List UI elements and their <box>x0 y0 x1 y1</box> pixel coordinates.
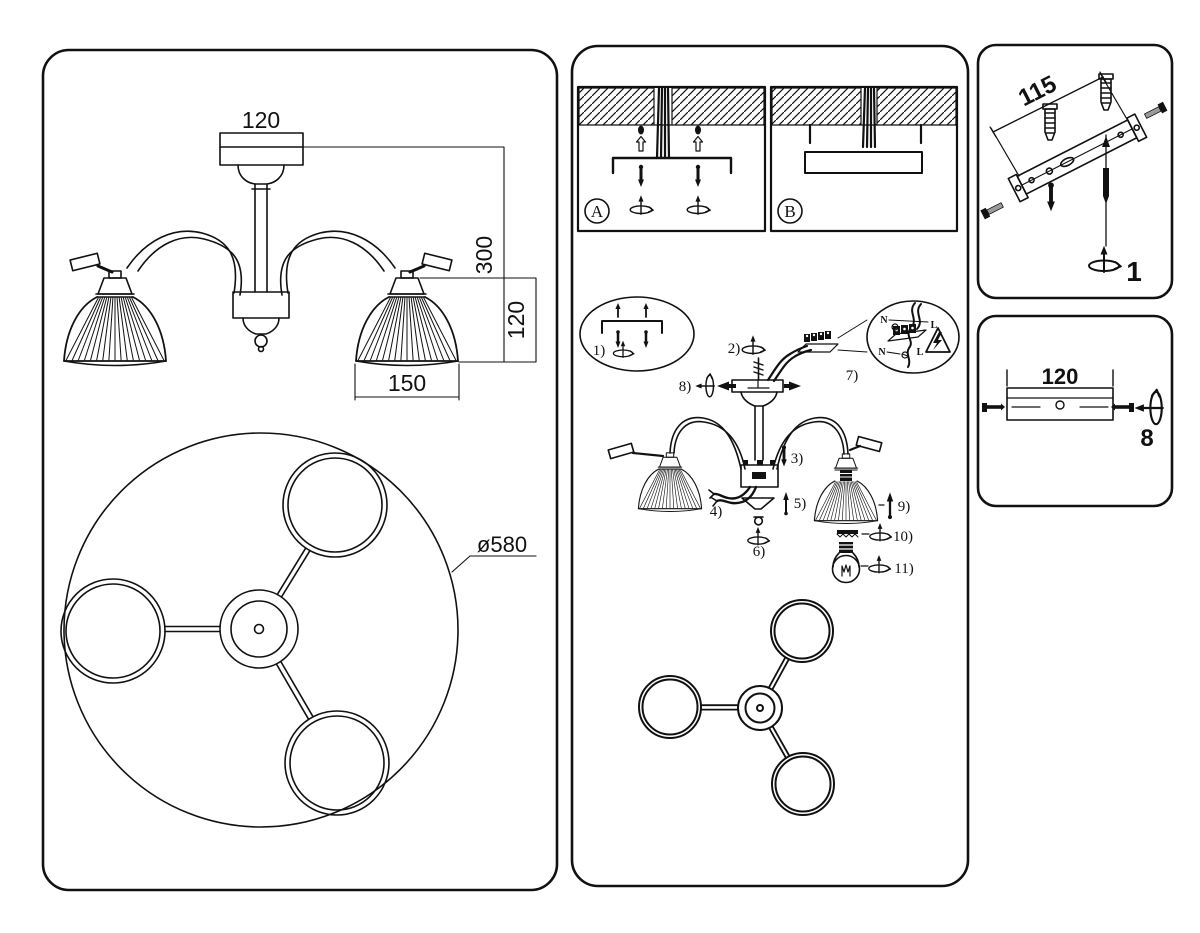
canopy-plate <box>1007 388 1113 420</box>
shade-fitter <box>96 271 134 297</box>
side-screw <box>1111 403 1134 412</box>
canopy <box>220 133 303 165</box>
right-arm <box>281 231 452 295</box>
step-number-label: 1 <box>1126 256 1142 287</box>
wire <box>917 304 921 329</box>
left-shade <box>64 271 166 366</box>
center-body <box>233 292 289 318</box>
instruction-sheet: 120 <box>0 0 1200 933</box>
wall-anchor-icon <box>1043 104 1057 140</box>
dim-canopy-width-label: 120 <box>242 107 280 133</box>
mounting-bracket <box>602 321 662 333</box>
rotation-icon <box>630 195 653 214</box>
right-shade <box>814 454 877 524</box>
right-shade <box>356 271 458 366</box>
rotation-icon <box>1134 390 1162 424</box>
arrow-left-icon <box>717 382 736 391</box>
arm-tip-tab <box>70 253 100 270</box>
side-screw-gray <box>980 200 1004 219</box>
diagram-canvas: 120 <box>0 0 1200 933</box>
screw-icon <box>1047 182 1055 211</box>
left-arm <box>70 231 241 295</box>
step-5-label: 5) <box>794 496 807 512</box>
mounting-bar <box>1008 114 1146 202</box>
canopy-plate <box>805 152 922 173</box>
shade-circles <box>61 453 389 815</box>
diameter-leader <box>452 556 536 572</box>
screw-icon <box>616 330 621 348</box>
top-view-drawing: ø580 <box>61 433 536 827</box>
screw-icon <box>783 492 789 515</box>
mini-top-view <box>639 600 834 815</box>
screw-icon <box>887 492 893 519</box>
right-top-panel: 115 <box>978 45 1172 298</box>
wiring-neutral-bottom-label: N <box>878 347 886 358</box>
right-top-panel-border <box>978 45 1172 298</box>
hub-arms <box>165 548 313 719</box>
dim-shade-height-label: 120 <box>503 301 529 339</box>
dim-diameter-label: ø580 <box>477 532 527 557</box>
dim-overall-height-label: 300 <box>471 236 497 274</box>
rotation-icon <box>1089 246 1121 272</box>
arrow-up-icon <box>615 303 620 317</box>
rotation-icon <box>870 523 892 541</box>
wall-anchor-icon <box>637 126 646 152</box>
step-b-label: B <box>784 202 795 221</box>
rotation-icon <box>748 527 770 545</box>
center-hub <box>220 590 298 668</box>
dim-canopy-width-label: 120 <box>1042 364 1079 389</box>
rotation-icon <box>695 374 714 397</box>
right-bottom-panel: 120 8 <box>978 316 1172 506</box>
rotation-icon <box>687 195 710 214</box>
middle-panel: A B 1) 2) <box>572 46 968 886</box>
rotation-icon <box>869 555 891 573</box>
step-8-label: 8) <box>679 379 692 395</box>
wall-anchor-icon <box>694 126 703 152</box>
dimension-lines <box>303 147 536 400</box>
step-number-label: 8 <box>1140 425 1153 452</box>
arrow-up-icon <box>643 303 648 317</box>
wiring-line-bottom-label: L <box>917 347 924 358</box>
arm-tip-tab <box>422 253 452 270</box>
warning-triangle-icon <box>926 328 950 352</box>
wiring-detail-ellipse: N L N L <box>867 301 959 373</box>
step-a-label: A <box>591 202 604 221</box>
side-screw-gray <box>1143 102 1167 121</box>
retaining-ring <box>837 530 858 537</box>
left-panel-border <box>43 50 557 890</box>
left-arm <box>608 418 745 469</box>
step-11-label: 11) <box>894 561 913 577</box>
wiring-neutral-top-label: N <box>880 315 888 326</box>
screw-icon <box>644 330 649 348</box>
dim-bracket-length-label: 115 <box>1014 70 1061 112</box>
step-1-label: 1) <box>593 343 606 359</box>
screw-icon <box>638 165 644 187</box>
step-4-label: 4) <box>710 504 723 520</box>
left-shade <box>638 453 701 512</box>
shade-fitter <box>388 271 426 297</box>
finial-knob <box>755 517 763 525</box>
step-3-label: 3) <box>791 451 804 467</box>
dim-shade-width-label: 150 <box>388 370 426 396</box>
screw-icon <box>781 445 787 466</box>
step-b-box: B <box>771 87 957 231</box>
mounting-bracket-detail: 115 <box>980 70 1167 287</box>
rotation-icon <box>742 335 765 354</box>
supply-wire <box>774 350 811 381</box>
screw-icon <box>695 165 701 187</box>
detail-ellipse-anchors: 1) <box>580 297 694 371</box>
ribbed-shade <box>64 297 166 366</box>
wire <box>908 303 915 367</box>
lamp-socket <box>840 470 852 481</box>
wall-anchor-icon <box>1099 74 1113 110</box>
mounting-bracket <box>613 158 731 173</box>
outline-circle <box>64 433 458 827</box>
step-a-box: A <box>578 87 765 231</box>
ribbed-shade <box>356 297 458 366</box>
light-bulb-icon <box>833 542 860 583</box>
canopy-screw-detail: 120 8 <box>982 364 1163 452</box>
left-panel: 120 <box>43 50 557 890</box>
arrow-right-icon <box>784 382 801 391</box>
step-10-label: 10) <box>893 529 913 545</box>
detail-leader-lines <box>838 320 867 352</box>
exploded-view: 2) 8) <box>608 320 914 583</box>
step-7-label: 7) <box>846 368 859 384</box>
step-2-label: 2) <box>728 341 741 357</box>
side-view-drawing: 120 <box>64 107 536 400</box>
terminal-block <box>798 331 838 352</box>
side-screw <box>982 403 1005 412</box>
step-6-label: 6) <box>753 544 766 560</box>
right-arm <box>773 418 882 469</box>
hanging-screws <box>810 125 921 143</box>
step-9-label: 9) <box>898 499 911 515</box>
